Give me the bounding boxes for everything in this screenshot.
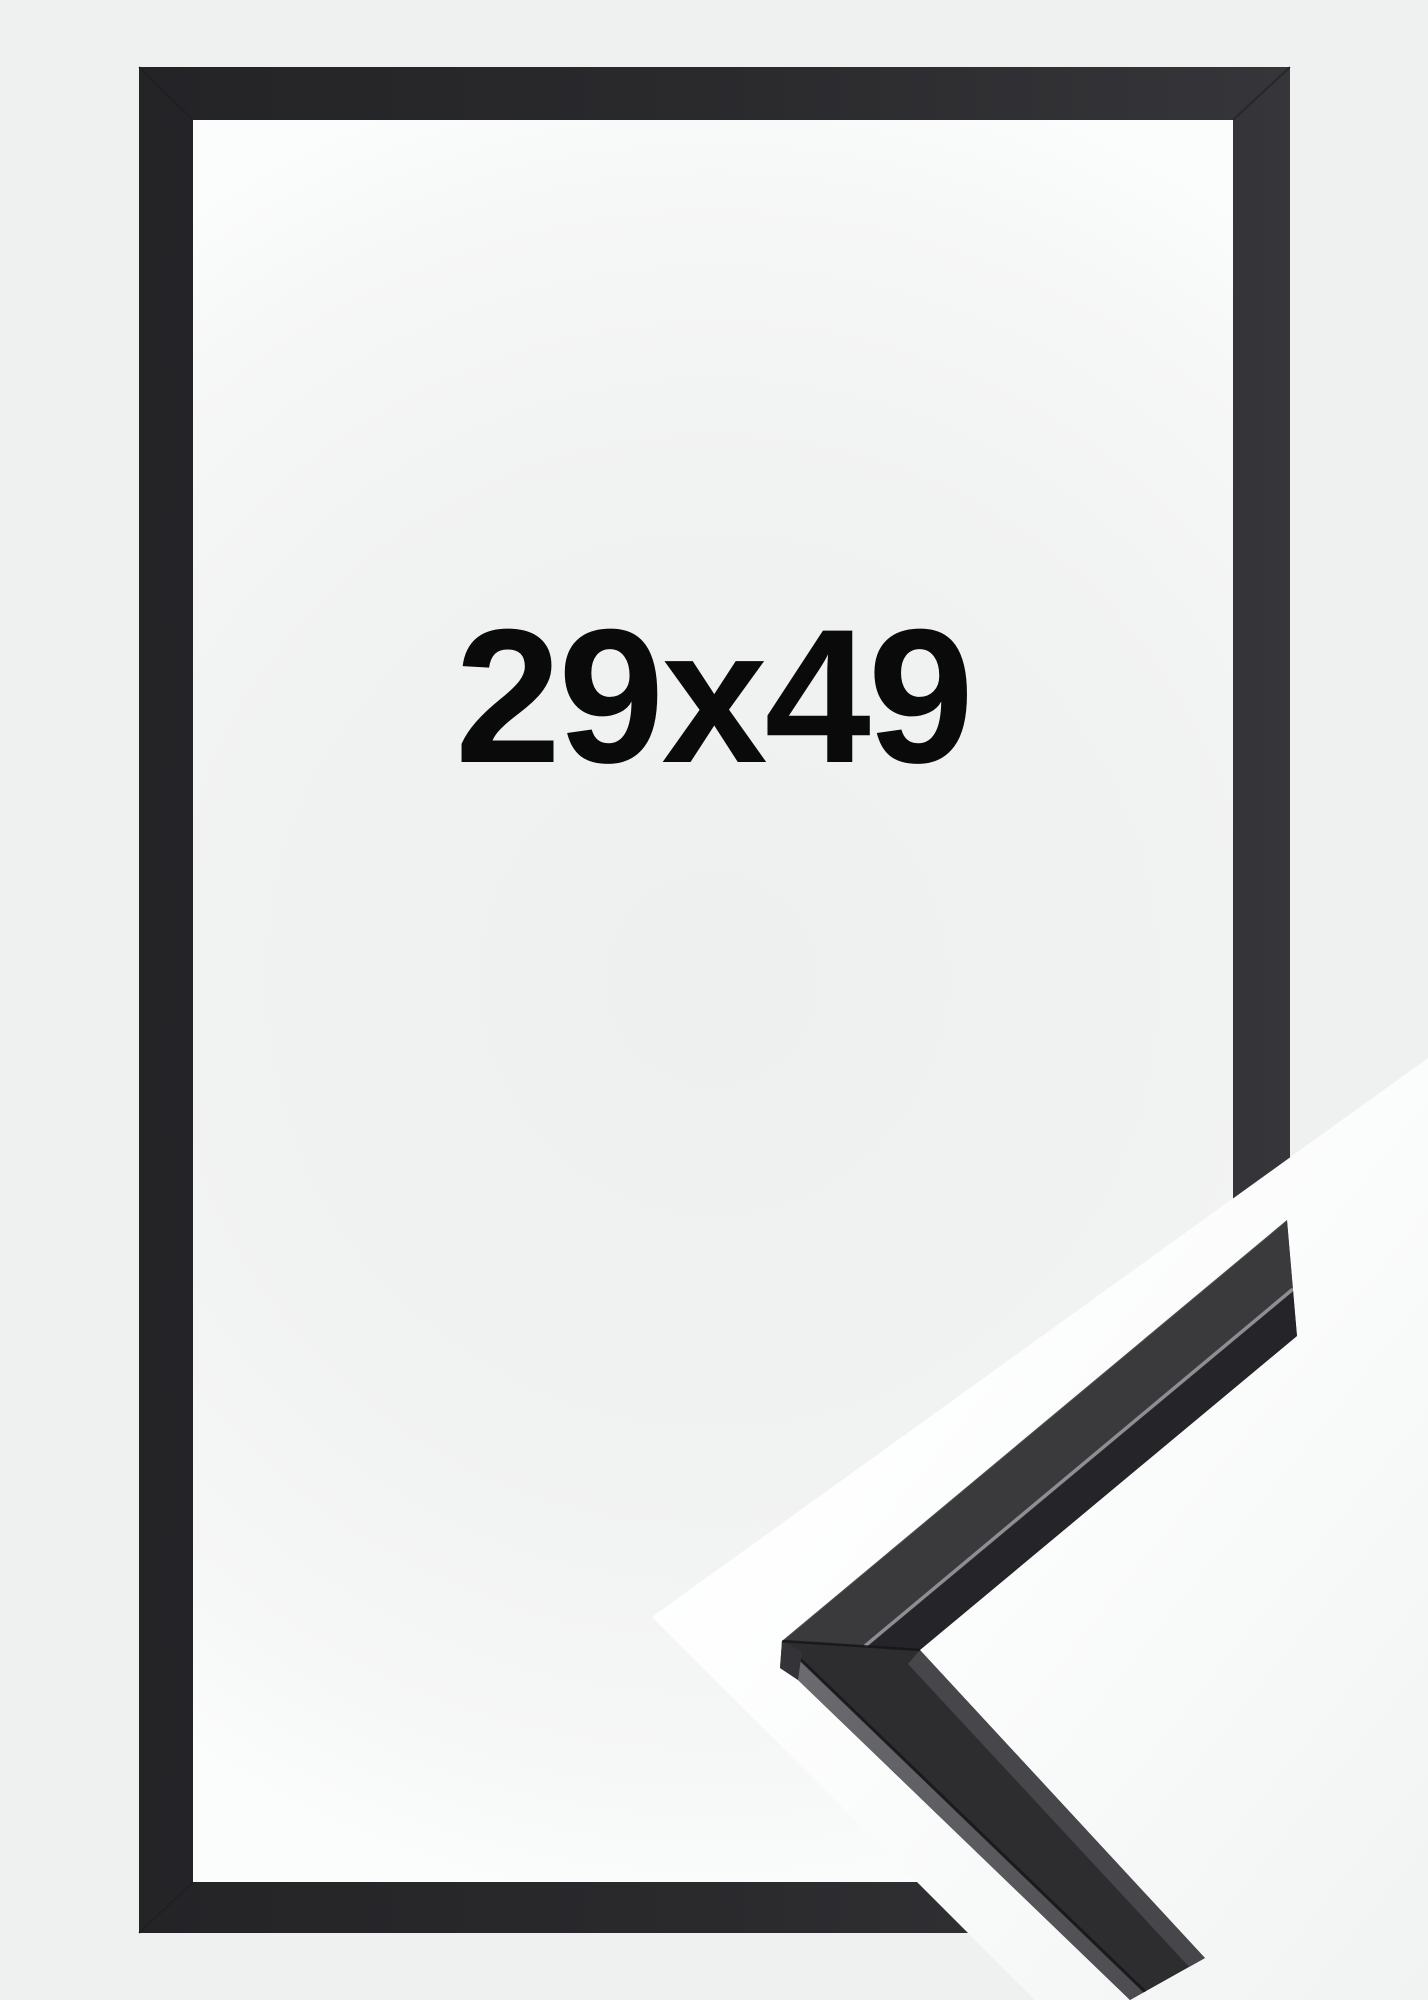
size-label: 29x49 <box>455 590 971 803</box>
product-image: 29x49 <box>0 0 1428 2000</box>
